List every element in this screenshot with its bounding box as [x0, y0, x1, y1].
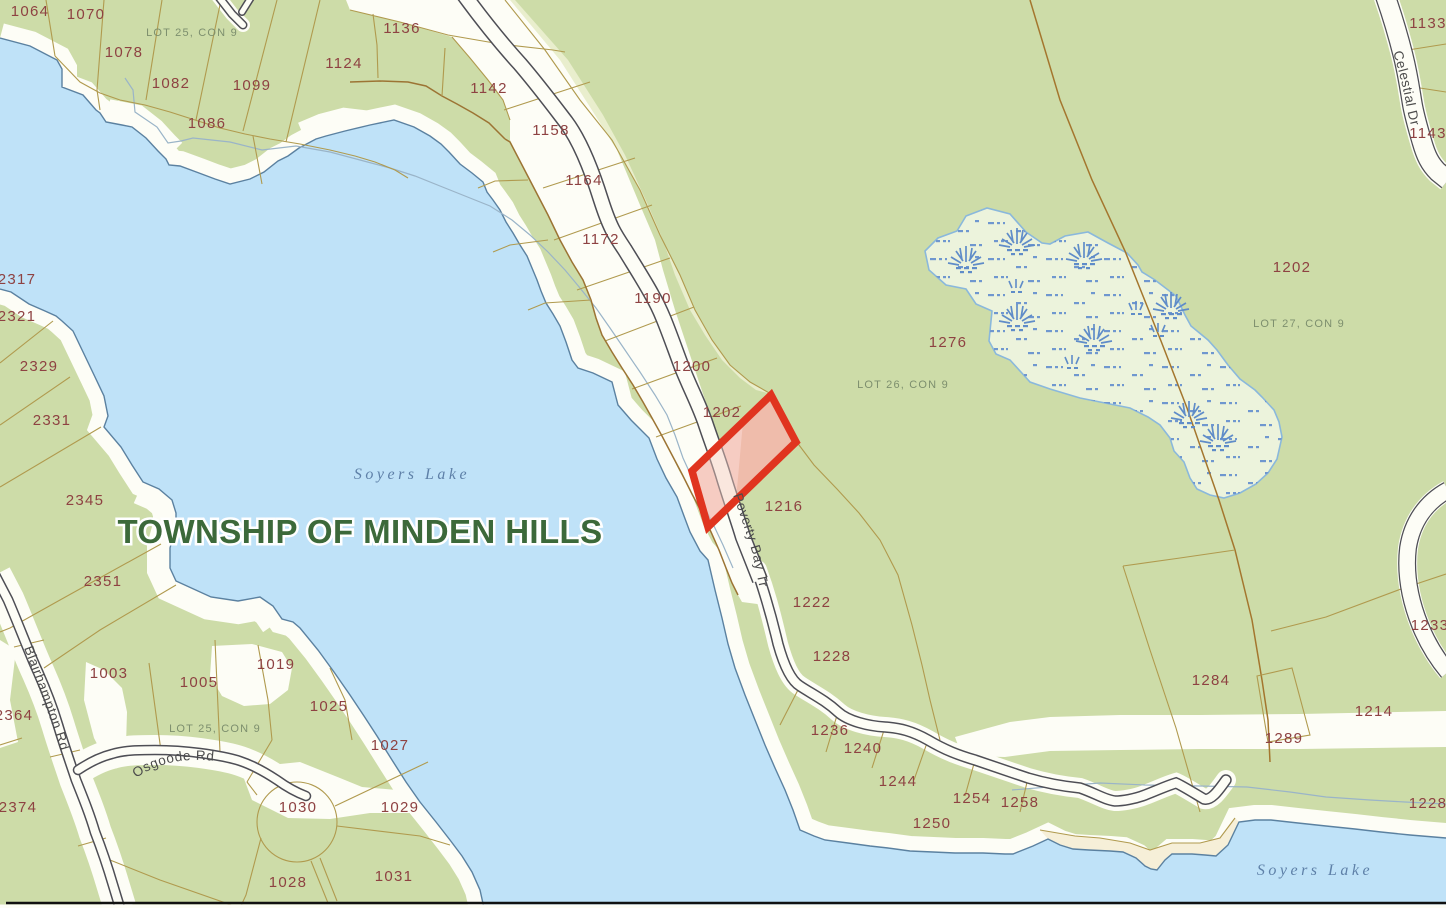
svg-text:1158: 1158: [532, 122, 569, 139]
svg-text:2331: 2331: [33, 412, 72, 429]
svg-text:2317: 2317: [0, 271, 36, 288]
svg-text:1064: 1064: [11, 3, 50, 20]
svg-text:LOT 25, CON 9: LOT 25, CON 9: [169, 723, 261, 735]
svg-text:1124: 1124: [325, 55, 362, 72]
svg-text:1086: 1086: [188, 115, 227, 132]
svg-text:1019: 1019: [257, 656, 296, 673]
svg-text:1289: 1289: [1265, 730, 1304, 747]
svg-text:2345: 2345: [66, 492, 105, 509]
svg-text:1003: 1003: [90, 665, 129, 682]
svg-text:2374: 2374: [0, 799, 37, 816]
svg-text:1143: 1143: [1409, 125, 1446, 142]
svg-text:1031: 1031: [375, 868, 414, 885]
svg-text:1136: 1136: [383, 20, 420, 37]
svg-text:1216: 1216: [765, 498, 804, 515]
svg-text:1284: 1284: [1192, 672, 1231, 689]
svg-text:2321: 2321: [0, 308, 36, 325]
svg-text:1029: 1029: [381, 799, 420, 816]
svg-text:1202: 1202: [1273, 259, 1312, 276]
svg-text:TOWNSHIP OF MINDEN HILLS: TOWNSHIP OF MINDEN HILLS: [117, 513, 602, 550]
svg-text:1254: 1254: [953, 790, 992, 807]
svg-text:1258: 1258: [1001, 794, 1040, 811]
svg-text:LOT 25, CON 9: LOT 25, CON 9: [146, 27, 238, 39]
svg-text:1078: 1078: [105, 44, 144, 61]
svg-text:1082: 1082: [152, 75, 191, 92]
svg-text:Soyers Lake: Soyers Lake: [1257, 862, 1373, 879]
svg-text:1027: 1027: [371, 737, 410, 754]
svg-text:1028: 1028: [269, 874, 308, 891]
svg-text:1030: 1030: [279, 799, 318, 816]
svg-text:1222: 1222: [793, 594, 832, 611]
svg-text:1202: 1202: [703, 404, 742, 421]
svg-text:1276: 1276: [929, 334, 968, 351]
svg-text:1190: 1190: [634, 290, 671, 307]
svg-text:1172: 1172: [582, 231, 619, 248]
svg-text:1133: 1133: [1409, 15, 1446, 32]
svg-text:2329: 2329: [20, 358, 59, 375]
svg-text:1233: 1233: [1411, 617, 1446, 634]
svg-text:1142: 1142: [470, 80, 507, 97]
svg-text:1236: 1236: [811, 722, 850, 739]
svg-text:2364: 2364: [0, 707, 33, 724]
svg-text:1214: 1214: [1355, 703, 1394, 720]
svg-text:1228: 1228: [1409, 795, 1446, 812]
svg-text:1200: 1200: [673, 358, 712, 375]
svg-text:1240: 1240: [844, 740, 883, 757]
svg-text:2351: 2351: [84, 573, 123, 590]
svg-text:1228: 1228: [813, 648, 852, 665]
svg-text:1250: 1250: [913, 815, 952, 832]
svg-text:1025: 1025: [310, 698, 349, 715]
svg-text:LOT 26, CON 9: LOT 26, CON 9: [857, 379, 949, 391]
svg-text:1164: 1164: [565, 172, 602, 189]
svg-text:Soyers Lake: Soyers Lake: [354, 466, 470, 483]
svg-text:1070: 1070: [67, 6, 106, 23]
svg-text:1099: 1099: [233, 77, 272, 94]
svg-text:1005: 1005: [180, 674, 219, 691]
svg-text:1244: 1244: [879, 773, 918, 790]
svg-text:LOT 27, CON 9: LOT 27, CON 9: [1253, 318, 1345, 330]
